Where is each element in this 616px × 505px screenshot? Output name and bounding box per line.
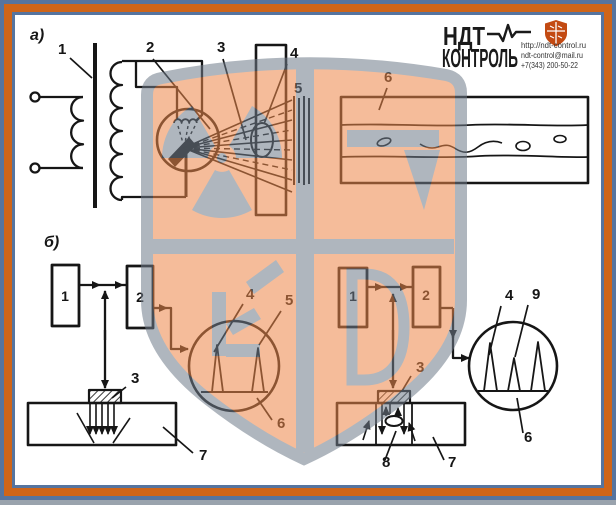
watermark-cross-vertical <box>296 58 314 452</box>
callout-beam: 3 <box>217 39 225 56</box>
callout-transformer: 1 <box>58 41 66 58</box>
echo-defect-echo-number: 9 <box>532 286 540 303</box>
brand-name-bottom: КОНТРОЛЬ <box>442 43 518 73</box>
scanned-diagram-page: а) 1 2 3 4 5 6 б) 1 2 3 4 5 6 7 1 2 3 4 … <box>0 0 616 500</box>
callout-tube: 2 <box>146 39 154 56</box>
transducer <box>89 390 121 403</box>
contact-website: http://ndt-control.ru <box>521 40 586 50</box>
shadow-transducer-number: 3 <box>131 370 139 387</box>
section-b-label: б) <box>44 234 59 251</box>
internal-defect <box>386 416 403 426</box>
watermark-cross-horizontal <box>150 239 454 254</box>
contact-phone: +7(343) 200-50-22 <box>521 60 578 70</box>
echo-initial-pulse-number: 4 <box>505 287 514 304</box>
echo-workpiece-number: 7 <box>448 454 456 471</box>
shadow-generator-number: 1 <box>61 288 69 304</box>
echo-defect-number: 8 <box>382 454 390 471</box>
shadow-workpiece-number: 7 <box>199 447 207 464</box>
section-a-label: а) <box>30 27 44 44</box>
figure-canvas: а) 1 2 3 4 5 6 б) 1 2 3 4 5 6 7 1 2 3 4 … <box>0 0 616 500</box>
contact-email: ndt-control@mail.ru <box>521 50 583 60</box>
echo-screen-number: 6 <box>524 429 532 446</box>
